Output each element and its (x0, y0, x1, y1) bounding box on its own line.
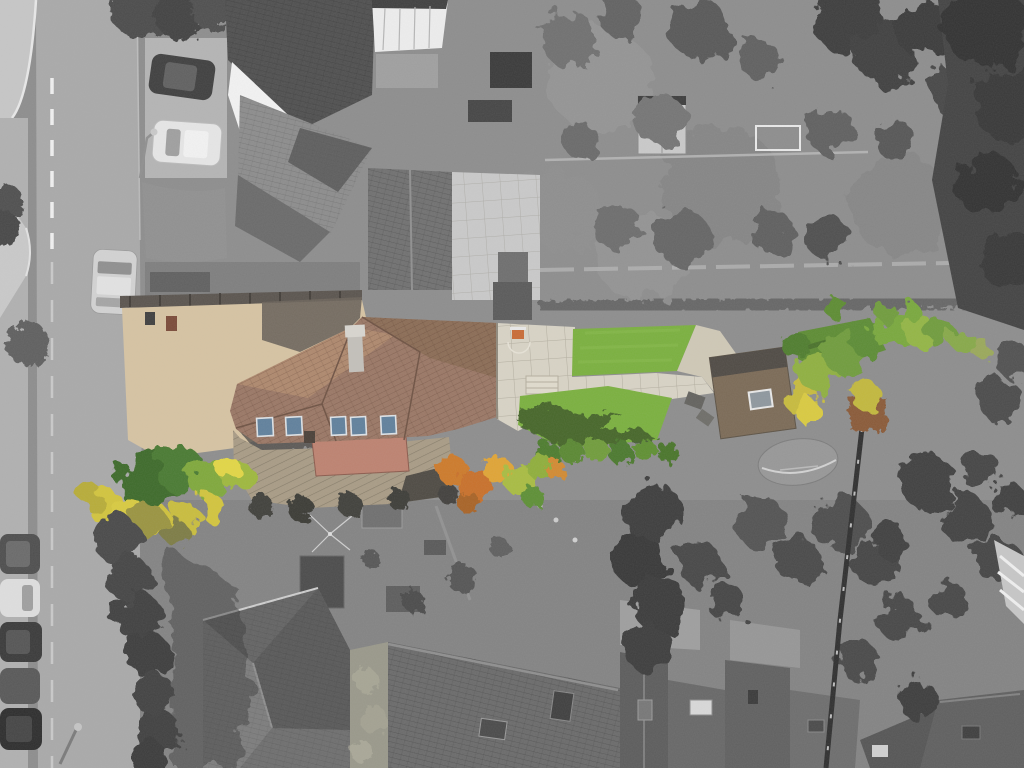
aerial-photo (0, 0, 1024, 768)
film-grain-overlay (0, 0, 1024, 768)
aerial-photo-canvas (0, 0, 1024, 768)
